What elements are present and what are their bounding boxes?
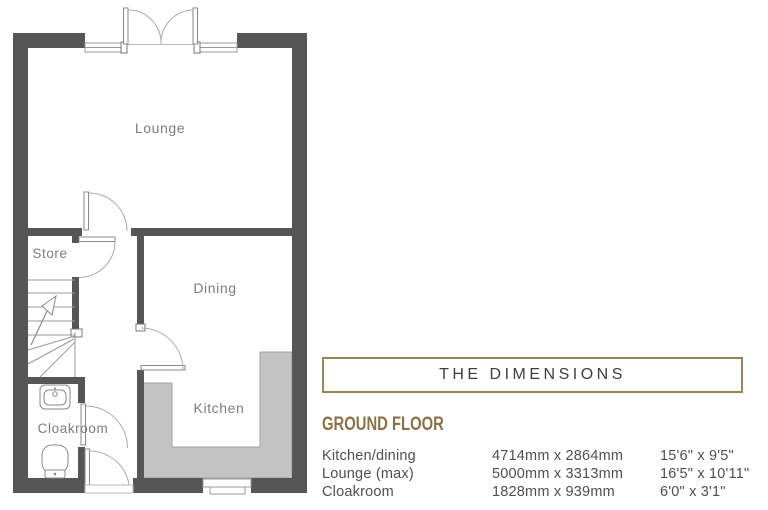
door-leaf — [141, 366, 185, 371]
door-leaf — [79, 237, 115, 242]
dim-row-imperial: 16'5" x 10'11" — [660, 465, 749, 483]
dim-row-metric: 5000mm x 3313mm — [492, 465, 660, 483]
dim-row-metric: 4714mm x 2864mm — [492, 447, 660, 465]
toilet-icon — [42, 445, 68, 478]
wall-bottom-left — [13, 478, 85, 493]
dim-row-room: Lounge (max) — [322, 465, 492, 483]
door-threshold — [85, 485, 133, 493]
room-label-cloakroom: Cloakroom — [38, 421, 109, 436]
wall-lounge-store — [28, 228, 82, 236]
wall-right — [292, 33, 307, 493]
room-label-dining: Dining — [193, 280, 236, 296]
door-leaf — [124, 8, 129, 44]
wall-hall-dining — [137, 236, 144, 326]
room-label-lounge: Lounge — [135, 120, 185, 136]
door-swing-icon — [89, 193, 128, 231]
front-door — [85, 449, 133, 493]
wall-left — [13, 33, 28, 493]
wall-hall-kitchen — [137, 370, 144, 478]
sink-tap-dot — [54, 388, 56, 390]
arrow-shaft — [31, 309, 48, 345]
dim-row-imperial: 6'0" x 3'1" — [660, 483, 749, 501]
wall-bottom-middle — [133, 478, 203, 493]
dim-row-metric: 1828mm x 939mm — [492, 483, 660, 501]
door-leaf — [84, 192, 89, 230]
door-swing-icon — [79, 242, 115, 278]
dimensions-panel: THE DIMENSIONS GROUND FLOOR Kitchen/dini… — [322, 357, 743, 501]
stair-winder — [28, 336, 75, 350]
room-label-kitchen: Kitchen — [194, 400, 245, 416]
dimensions-table: Kitchen/dining 4714mm x 2864mm 15'6" x 9… — [322, 447, 743, 501]
wall-store-stub — [72, 236, 79, 243]
dimensions-title-box: THE DIMENSIONS — [322, 357, 743, 393]
door-jamb-box — [71, 329, 82, 337]
door-jamb-box — [136, 324, 145, 331]
dimensions-title: THE DIMENSIONS — [439, 366, 626, 384]
dim-row-room: Cloakroom — [322, 483, 492, 501]
stair-winder — [40, 342, 75, 377]
toilet-bowl — [42, 445, 68, 473]
dim-row-imperial: 15'6" x 9'5" — [660, 447, 749, 465]
wall-lounge-dining — [131, 228, 292, 236]
ground-floor-heading: GROUND FLOOR — [322, 414, 650, 436]
door-leaf — [193, 8, 198, 44]
wall-cloakroom-top — [28, 377, 85, 384]
store-door — [79, 237, 115, 278]
kitchen-window-icon — [203, 479, 251, 494]
window-icon — [203, 479, 251, 487]
sink-drain — [53, 392, 57, 396]
dining-door — [141, 328, 185, 370]
stairs-icon — [28, 280, 75, 377]
wall-hall-stairs — [72, 277, 79, 332]
lounge-door — [84, 192, 127, 231]
door-swing-icon — [161, 10, 193, 44]
arrow-head — [42, 296, 56, 315]
door-swing-icon — [128, 10, 161, 44]
room-label-store: Store — [32, 246, 67, 261]
door-swing-icon — [141, 328, 183, 370]
toilet-dot — [54, 473, 57, 476]
sink-icon — [40, 385, 70, 409]
door-leaf — [85, 449, 90, 489]
wall-cloakroom-right-upper — [78, 384, 85, 403]
dim-row-room: Kitchen/dining — [322, 447, 492, 465]
wall-bottom-right — [251, 478, 307, 493]
window-sill — [210, 487, 245, 494]
floor-plan: Lounge Store Dining Kitchen Cloakroom — [0, 0, 320, 510]
wall-cloakroom-right-lower — [78, 447, 85, 478]
french-doors-icon — [85, 8, 237, 53]
wall-top-left — [13, 33, 85, 48]
